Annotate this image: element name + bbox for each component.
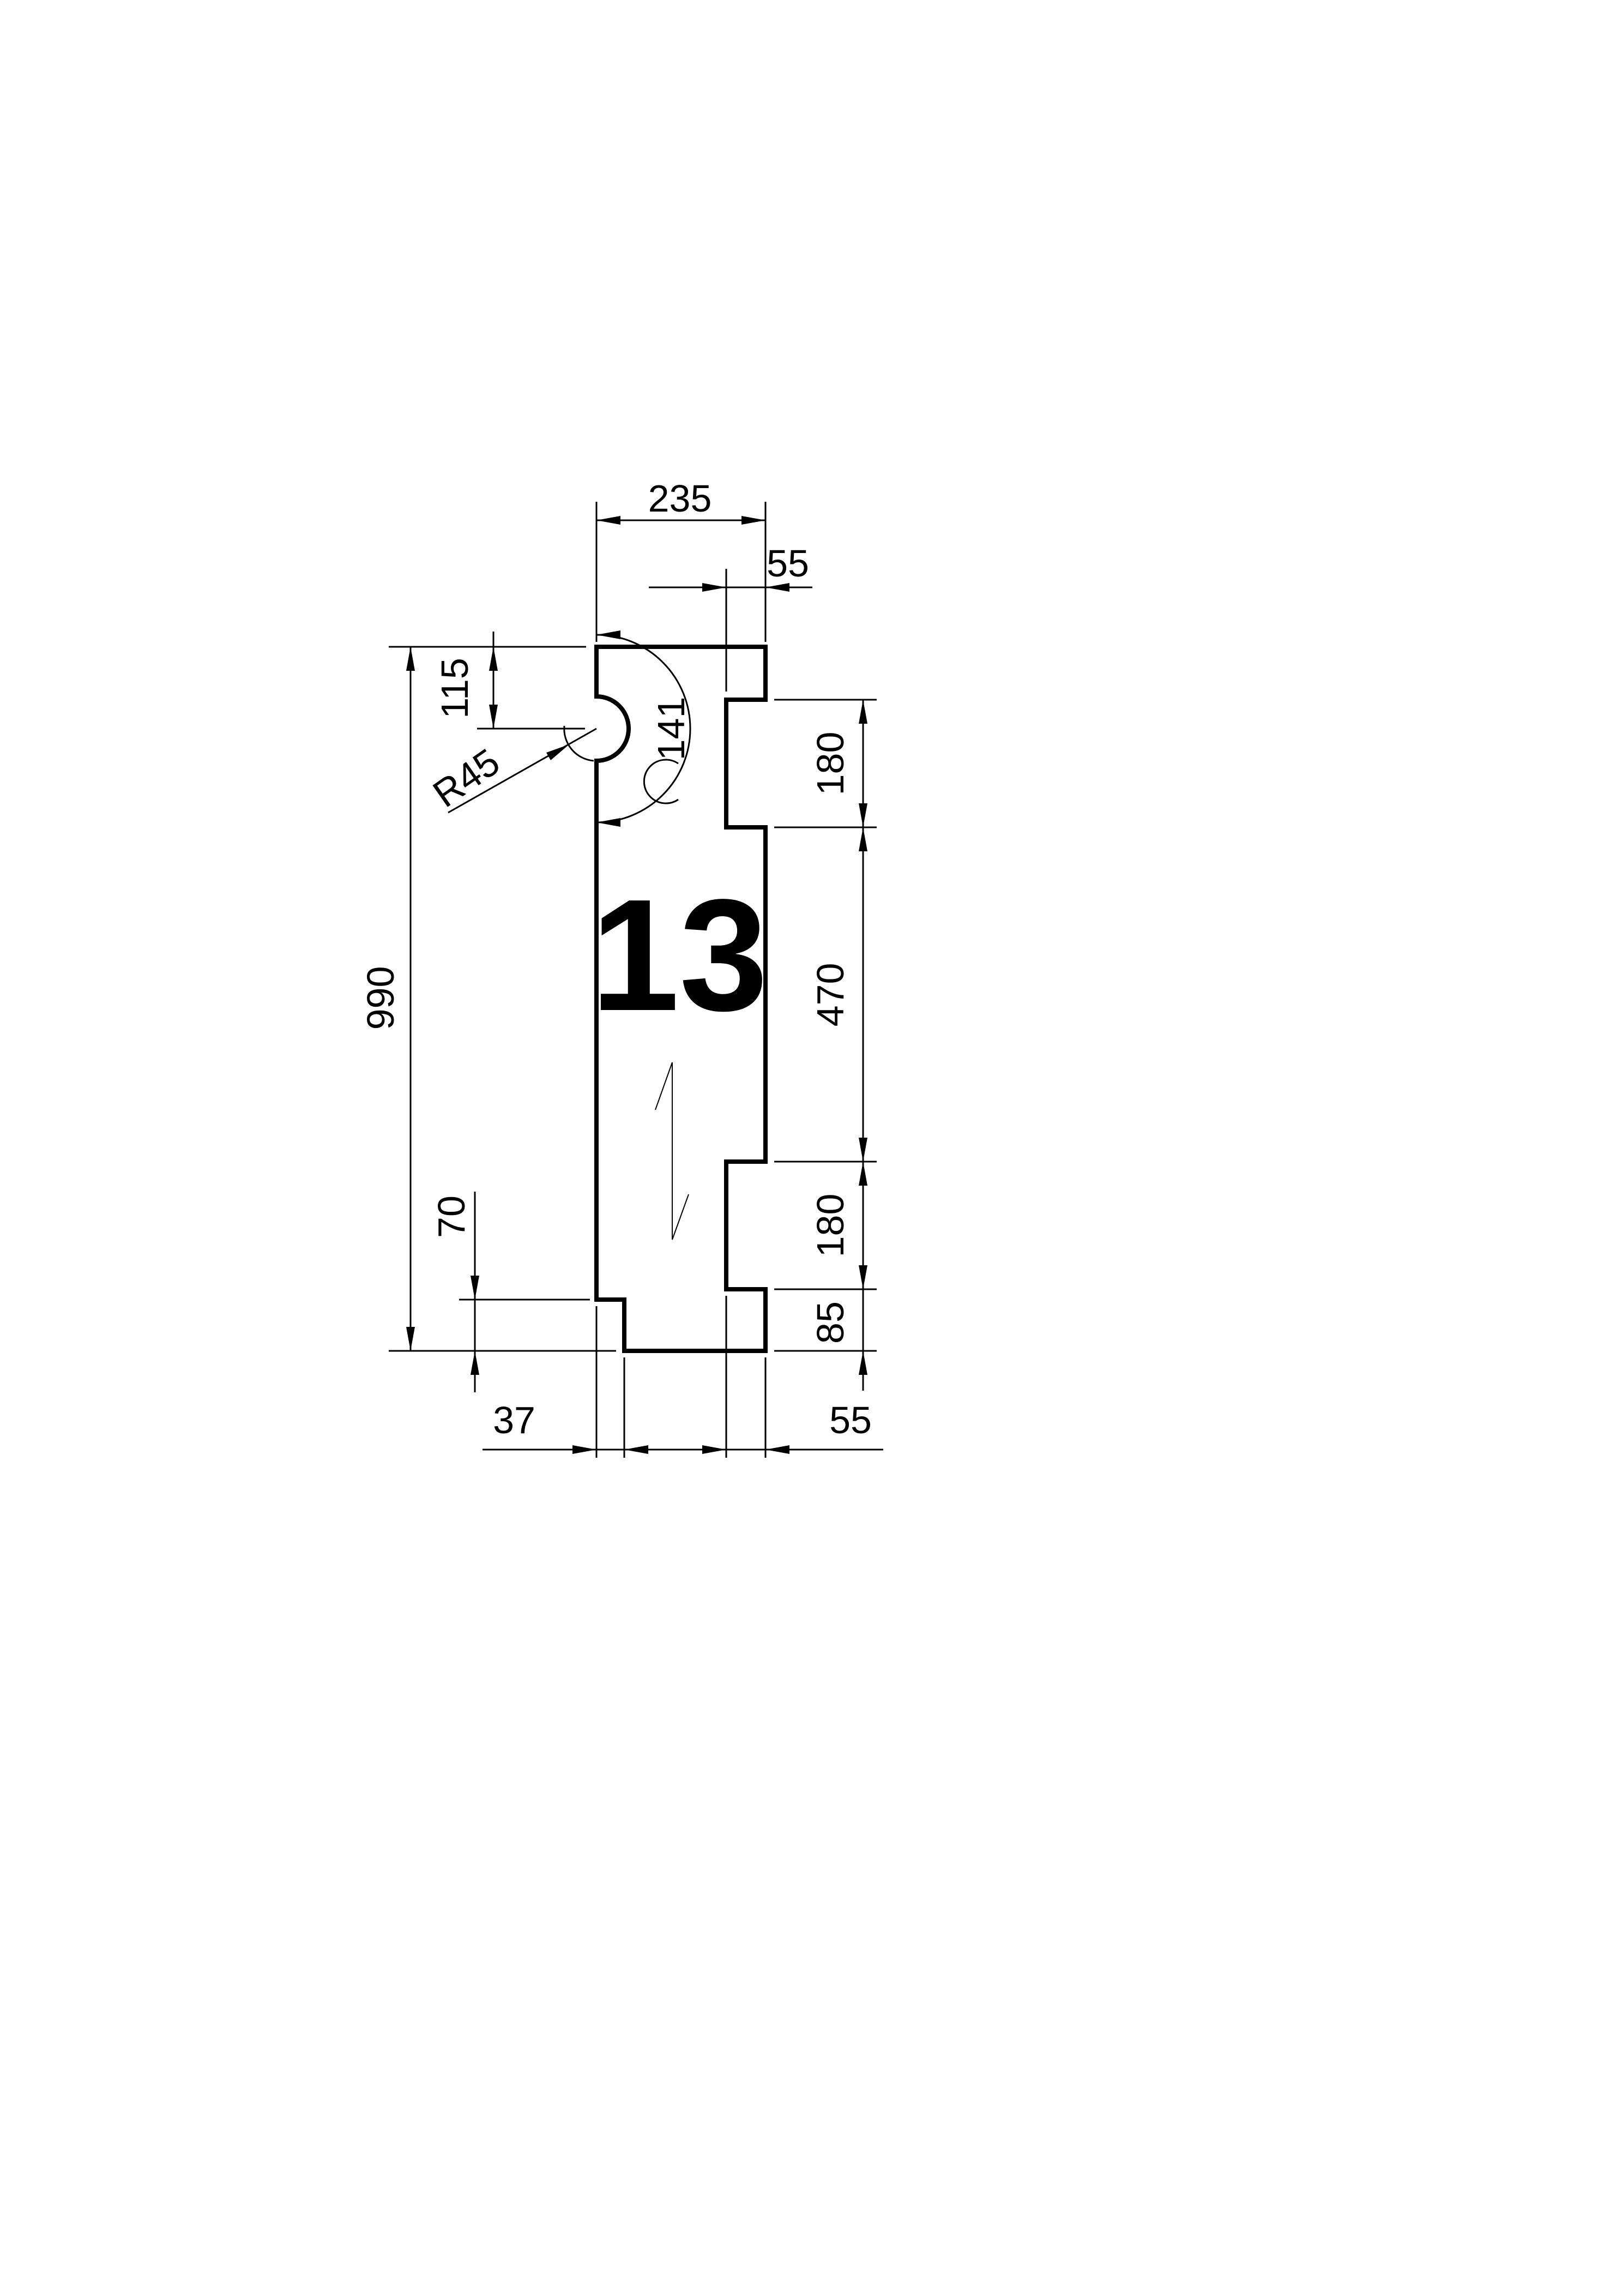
- dim-middle-height-label: 470: [809, 963, 852, 1027]
- dim-semicircle-offset-label: 115: [433, 658, 476, 719]
- dim-radius-label: R45: [425, 741, 507, 816]
- arrowhead: [859, 700, 867, 724]
- arrowhead: [859, 827, 867, 851]
- radius-construction-arc: [564, 726, 594, 761]
- dim-bottom-right-height-label: 85: [809, 1301, 852, 1344]
- dim-arc-length-label: 141: [650, 697, 692, 761]
- arrowhead: [489, 705, 498, 729]
- dim-width-top-label: 235: [648, 477, 712, 520]
- dim-notch2-height-label: 180: [809, 1194, 852, 1258]
- dim-notch-depth-bottom-label: 55: [829, 1399, 872, 1441]
- dim-bottom-step-width-label: 37: [493, 1399, 535, 1441]
- arrowhead: [859, 803, 867, 827]
- direction-arrow-shaft: [655, 1062, 689, 1240]
- arrowhead: [596, 818, 620, 827]
- arrowhead: [572, 1445, 596, 1454]
- arrowhead: [406, 1327, 415, 1351]
- arrowhead: [859, 1265, 867, 1289]
- arrowhead: [859, 1162, 867, 1186]
- arrowhead: [489, 647, 498, 671]
- arrowhead: [859, 1351, 867, 1375]
- dim-notch-depth-top-label: 55: [767, 542, 809, 585]
- arrowhead: [859, 1138, 867, 1162]
- arrowhead: [624, 1445, 648, 1454]
- arrowhead: [702, 583, 726, 592]
- arrowhead: [546, 744, 569, 760]
- arrowhead: [596, 630, 620, 639]
- arrowhead: [702, 1445, 726, 1454]
- arrowhead: [741, 516, 765, 525]
- direction-arrow: [655, 1062, 689, 1240]
- arrowhead: [765, 1445, 789, 1454]
- part-number-label: 13: [591, 866, 768, 1044]
- technical-drawing-canvas: 235 55 115 R45 141 990 180 470 180 85 70…: [0, 0, 1622, 2296]
- arrowhead: [471, 1351, 479, 1375]
- arrowhead: [471, 1276, 479, 1300]
- drawing-page: 235 55 115 R45 141 990 180 470 180 85 70…: [0, 0, 1622, 2296]
- dim-total-height-label: 990: [359, 966, 402, 1030]
- dim-bottom-left-height-label: 70: [430, 1195, 473, 1238]
- arrowhead: [406, 647, 415, 671]
- dim-notch1-height-label: 180: [809, 732, 852, 796]
- arrowhead: [596, 516, 620, 525]
